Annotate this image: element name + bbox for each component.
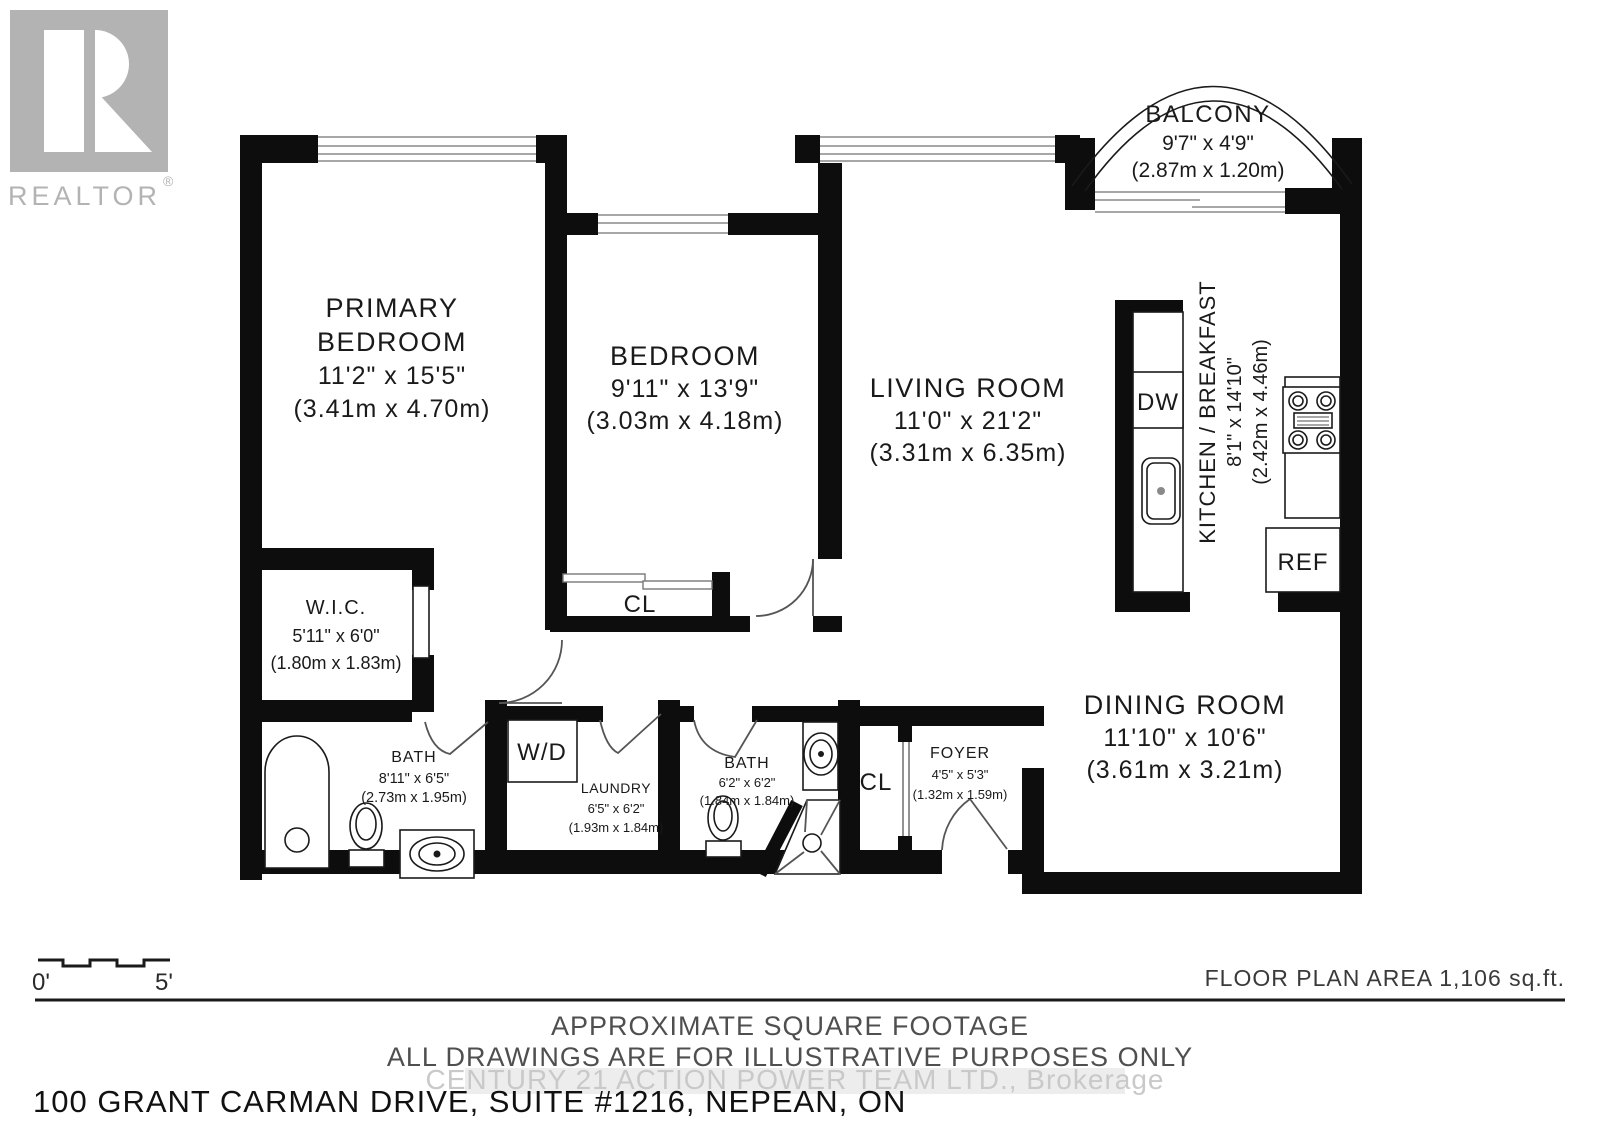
disclaimer-line1: APPROXIMATE SQUARE FOOTAGE [551,1011,1029,1041]
wic-metric: (1.80m x 1.83m) [270,653,401,673]
wic-name: W.I.C. [306,597,366,619]
door-swing-laundry [600,714,661,753]
kitchen-imperial: 8'1" x 14'10" [1224,357,1246,467]
refrigerator-label: REF [1278,549,1329,576]
living-imperial: 11'0" x 21'2" [894,407,1042,435]
balcony-sliding-door [1095,190,1285,214]
door-swing-primary-bedroom [499,640,562,703]
foyer-metric: (1.32m x 1.59m) [913,787,1008,802]
wic-imperial: 5'11" x 6'0" [292,626,379,646]
realtor-logo-r-stem [44,30,84,152]
foyer-imperial: 4'5" x 5'3" [932,767,989,782]
bedroom-imperial: 9'11" x 13'9" [611,375,759,403]
sink-vanity-ensuite [400,830,474,878]
dining-name: DINING ROOM [1084,690,1287,720]
bath-ensuite-imperial: 8'11" x 6'5" [379,771,449,787]
laundry-metric: (1.93m x 1.84m) [569,820,664,835]
bedroom-name: BEDROOM [610,341,760,371]
scale-start-label: 0' [32,969,50,996]
toilet-ensuite [349,803,384,867]
scale-bar: 0' 5' [32,960,173,996]
dining-metric: (3.61m x 3.21m) [1086,756,1283,784]
bath-main-metric: (1.84m x 1.84m) [700,793,795,808]
primary-name-line2: BEDROOM [317,327,467,357]
living-name: LIVING ROOM [870,373,1067,403]
door-swing-entrance [942,799,1007,850]
page: { "branding": { "realtor_text": "REALTOR… [0,0,1600,1131]
washer-dryer-label: W/D [517,739,567,766]
room-label-balcony: BALCONY 9'7" x 4'9" (2.87m x 1.20m) [1132,101,1285,182]
shower [760,800,840,874]
bath-main-imperial: 6'2" x 6'2" [719,775,776,790]
bedroom-metric: (3.03m x 4.18m) [586,407,783,435]
foyer-closet-sliding-door [898,726,912,852]
door-swing-bath-main [694,720,757,757]
floor-plan-area-label: FLOOR PLAN AREA 1,106 sq.ft. [1205,965,1565,991]
bath-ensuite-metric: (2.73m x 1.95m) [361,790,467,806]
room-label-primary-bedroom: PRIMARY BEDROOM 11'2" x 15'5" (3.41m x 4… [293,293,490,423]
laundry-name: LAUNDRY [581,780,651,796]
window-primary-bedroom [318,135,536,163]
room-label-foyer: FOYER 4'5" x 5'3" (1.32m x 1.59m) [913,745,1008,802]
primary-metric: (3.41m x 4.70m) [293,395,490,423]
dishwasher-label: DW [1137,389,1179,416]
room-label-kitchen: KITCHEN / BREAKFAST 8'1" x 14'10" (2.42m… [1195,280,1272,544]
balcony-name: BALCONY [1145,101,1270,128]
room-label-living-room: LIVING ROOM 11'0" x 21'2" (3.31m x 6.35m… [869,373,1066,467]
window-living-room [820,135,1055,163]
primary-imperial: 11'2" x 15'5" [318,362,466,390]
dining-imperial: 11'10" x 10'6" [1103,724,1266,752]
balcony-imperial: 9'7" x 4'9" [1162,132,1254,155]
kitchen-name: KITCHEN / BREAKFAST [1195,280,1220,544]
bedroom-closet-label: CL [624,591,657,618]
door-swing-bedroom [756,559,813,616]
bathtub [265,736,329,868]
kitchen-sink [1142,458,1180,524]
floor-plan-canvas: REALTOR ® [0,0,1600,1131]
primary-name-line1: PRIMARY [325,293,458,323]
living-metric: (3.31m x 6.35m) [869,439,1066,467]
stove [1283,387,1340,453]
realtor-logo-text: REALTOR [8,181,161,211]
wic-door-panel [413,586,429,658]
kitchen-metric: (2.42m x 4.46m) [1250,339,1272,485]
room-label-bath-ensuite: BATH 8'11" x 6'5" (2.73m x 1.95m) [361,749,467,806]
sink-vanity-main [803,722,838,790]
balcony-metric: (2.87m x 1.20m) [1132,159,1285,182]
room-label-bath-main: BATH 6'2" x 6'2" (1.84m x 1.84m) [700,755,795,808]
foyer-closet-label: CL [860,769,893,796]
registered-mark: ® [163,173,174,189]
room-label-bedroom: BEDROOM 9'11" x 13'9" (3.03m x 4.18m) [586,341,783,435]
bath-ensuite-name: BATH [391,749,436,766]
property-address: 100 GRANT CARMAN DRIVE, SUITE #1216, NEP… [33,1084,906,1119]
room-label-dining-room: DINING ROOM 11'10" x 10'6" (3.61m x 3.21… [1084,690,1287,784]
scale-end-label: 5' [155,969,173,996]
kitchen-counter-left [1133,312,1183,592]
bath-main-name: BATH [724,755,769,772]
bedroom-closet-sliding-door [563,574,712,589]
room-label-laundry: LAUNDRY 6'5" x 6'2" (1.93m x 1.84m) [569,780,664,835]
foyer-name: FOYER [930,745,990,762]
laundry-imperial: 6'5" x 6'2" [588,801,645,816]
realtor-logo: REALTOR ® [8,10,174,211]
window-bedroom [598,213,728,235]
room-label-wic: W.I.C. 5'11" x 6'0" (1.80m x 1.83m) [270,597,401,673]
